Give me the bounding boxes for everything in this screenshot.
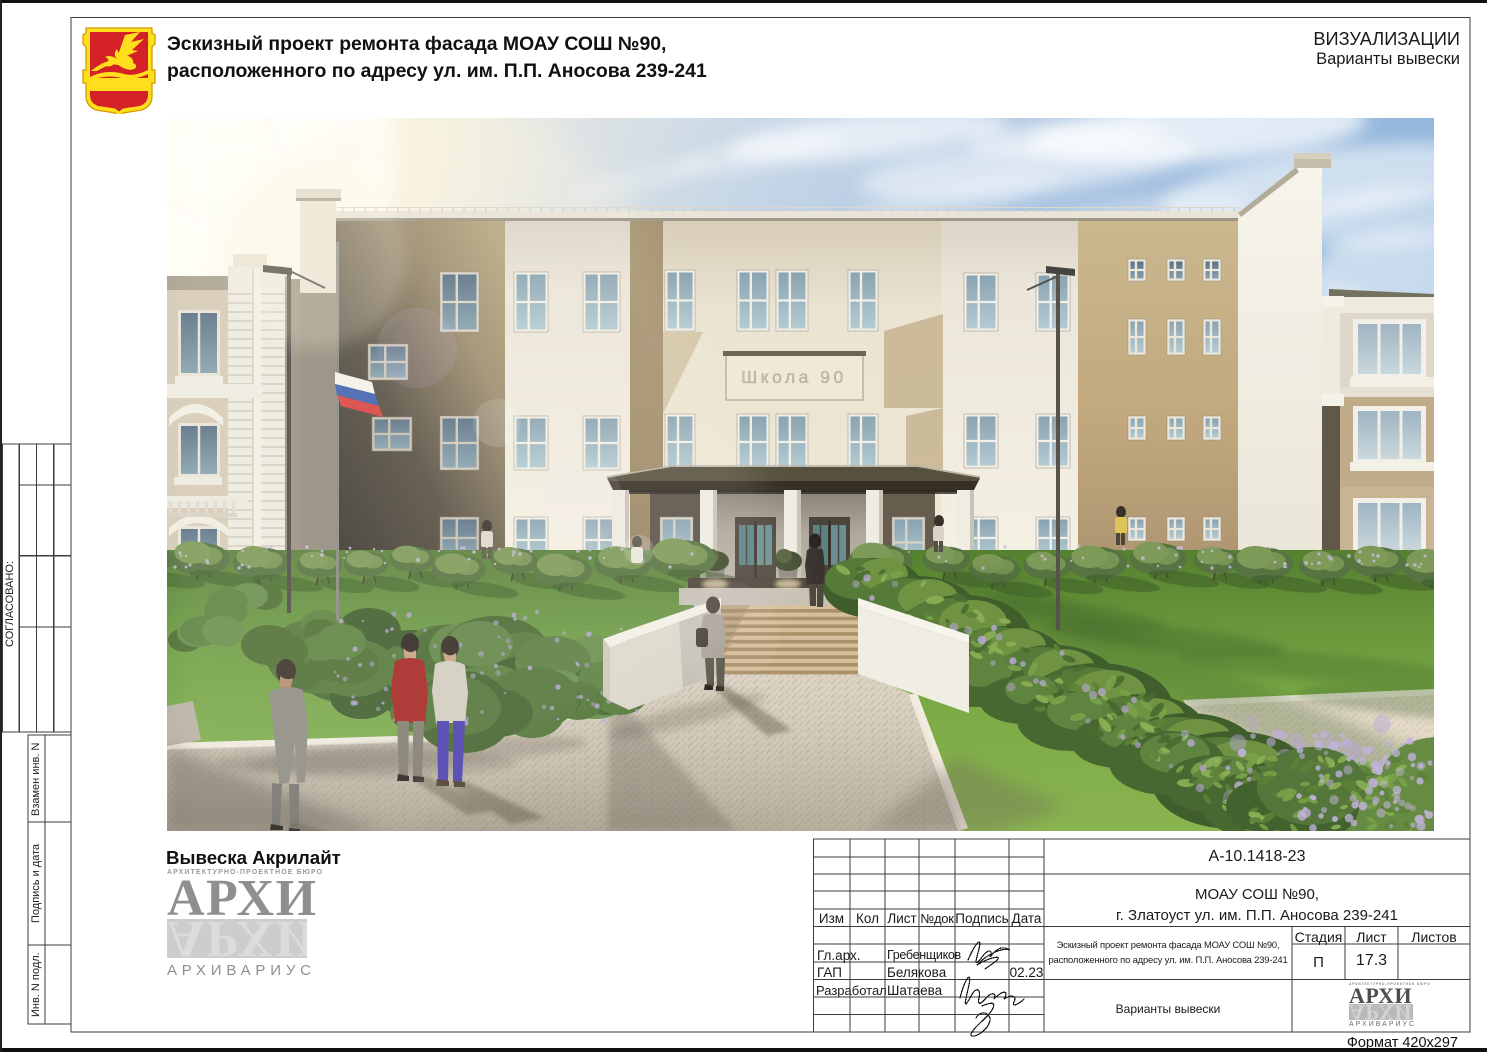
svg-text:Школа 90: Школа 90	[741, 367, 847, 387]
